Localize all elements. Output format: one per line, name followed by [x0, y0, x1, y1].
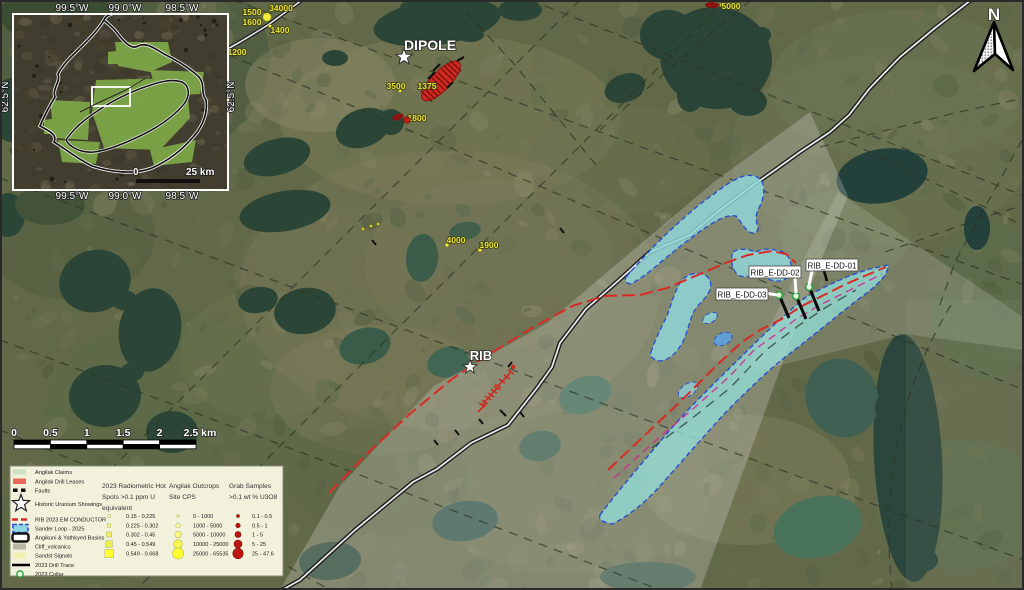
svg-text:1200: 1200 [228, 47, 247, 57]
svg-text:62.5°N: 62.5°N [226, 82, 237, 113]
svg-text:Angilak Outcrops: Angilak Outcrops [169, 483, 220, 490]
svg-text:99.5°W: 99.5°W [56, 3, 89, 14]
svg-text:0.302 - 0.45: 0.302 - 0.45 [126, 533, 155, 539]
svg-text:>0.1 wt % U3O8: >0.1 wt % U3O8 [229, 494, 278, 501]
svg-text:0: 0 [133, 167, 139, 178]
svg-text:1000 - 5000: 1000 - 5000 [193, 524, 222, 530]
svg-text:Sandst Signals: Sandst Signals [35, 554, 73, 560]
svg-text:2: 2 [157, 427, 163, 439]
svg-text:99.0°W: 99.0°W [109, 191, 142, 202]
svg-text:10000 - 25000: 10000 - 25000 [193, 542, 228, 548]
svg-text:2023 Radiometric Hot: 2023 Radiometric Hot [102, 483, 166, 490]
svg-text:0.225 - 0.302: 0.225 - 0.302 [126, 524, 158, 530]
svg-text:0: 0 [11, 427, 17, 439]
svg-text:2023 Drill Trace: 2023 Drill Trace [35, 563, 74, 569]
svg-text:0.15 - 0.225: 0.15 - 0.225 [126, 514, 155, 520]
svg-text:Historic Uranium Showings: Historic Uranium Showings [35, 502, 102, 508]
svg-text:1: 1 [84, 427, 90, 439]
svg-text:1.5: 1.5 [116, 427, 131, 439]
svg-text:4000: 4000 [447, 235, 466, 245]
svg-text:2.5 km: 2.5 km [184, 427, 217, 439]
svg-text:DIPOLE: DIPOLE [404, 37, 456, 53]
svg-text:Spots >0.1 ppm U: Spots >0.1 ppm U [102, 494, 155, 501]
svg-text:1 - 5: 1 - 5 [252, 533, 263, 539]
svg-text:99.0°W: 99.0°W [109, 3, 142, 14]
svg-text:98.5°W: 98.5°W [166, 191, 199, 202]
svg-text:Angilak Drill Leases: Angilak Drill Leases [35, 480, 84, 486]
svg-text:25 km: 25 km [186, 167, 214, 178]
svg-text:0.5: 0.5 [43, 427, 58, 439]
svg-text:34000: 34000 [269, 3, 293, 13]
svg-text:1400: 1400 [271, 25, 290, 35]
svg-text:1500: 1500 [243, 7, 262, 17]
svg-text:99.5°W: 99.5°W [56, 191, 89, 202]
svg-text:5000: 5000 [722, 1, 741, 11]
svg-text:25000 - 65535: 25000 - 65535 [193, 552, 228, 558]
svg-text:Cliff_volcanics: Cliff_volcanics [35, 545, 71, 551]
svg-text:3500: 3500 [387, 81, 406, 91]
svg-text:RIB_E-DD-01: RIB_E-DD-01 [808, 261, 857, 270]
svg-text:RIB: RIB [470, 348, 492, 363]
svg-text:25 - 47.6: 25 - 47.6 [252, 552, 274, 558]
svg-text:1900: 1900 [480, 240, 499, 250]
svg-text:5000 - 10000: 5000 - 10000 [193, 533, 225, 539]
svg-text:RIB_E-DD-03: RIB_E-DD-03 [718, 290, 767, 299]
svg-text:Grab Samples: Grab Samples [229, 483, 272, 490]
svg-text:1600: 1600 [243, 17, 262, 27]
svg-text:0.549 - 0.668: 0.549 - 0.668 [126, 552, 158, 558]
svg-text:2023 Collar: 2023 Collar [35, 572, 64, 578]
svg-text:98.5°W: 98.5°W [166, 3, 199, 14]
svg-text:0.5 - 1: 0.5 - 1 [252, 524, 268, 530]
svg-text:Site CPS: Site CPS [169, 494, 196, 501]
svg-text:Sander Loop - 2025: Sander Loop - 2025 [35, 527, 84, 533]
svg-text:0.1 - 0.5: 0.1 - 0.5 [252, 514, 272, 520]
svg-text:equivalent: equivalent [102, 505, 132, 512]
svg-text:1800: 1800 [408, 113, 427, 123]
svg-text:RIB_E-DD-02: RIB_E-DD-02 [751, 268, 800, 277]
svg-text:0 - 1000: 0 - 1000 [193, 514, 213, 520]
svg-text:Faults: Faults [35, 489, 50, 495]
svg-text:RIB 2023 EM CONDUCTOR: RIB 2023 EM CONDUCTOR [35, 518, 106, 524]
svg-text:1375: 1375 [418, 81, 437, 91]
svg-text:5 - 25: 5 - 25 [252, 542, 266, 548]
svg-text:Angilak Claims: Angilak Claims [35, 470, 72, 476]
svg-text:Angikuni & Yathkyed Basins: Angikuni & Yathkyed Basins [35, 536, 105, 542]
svg-text:0.45 - 0.549: 0.45 - 0.549 [126, 542, 155, 548]
